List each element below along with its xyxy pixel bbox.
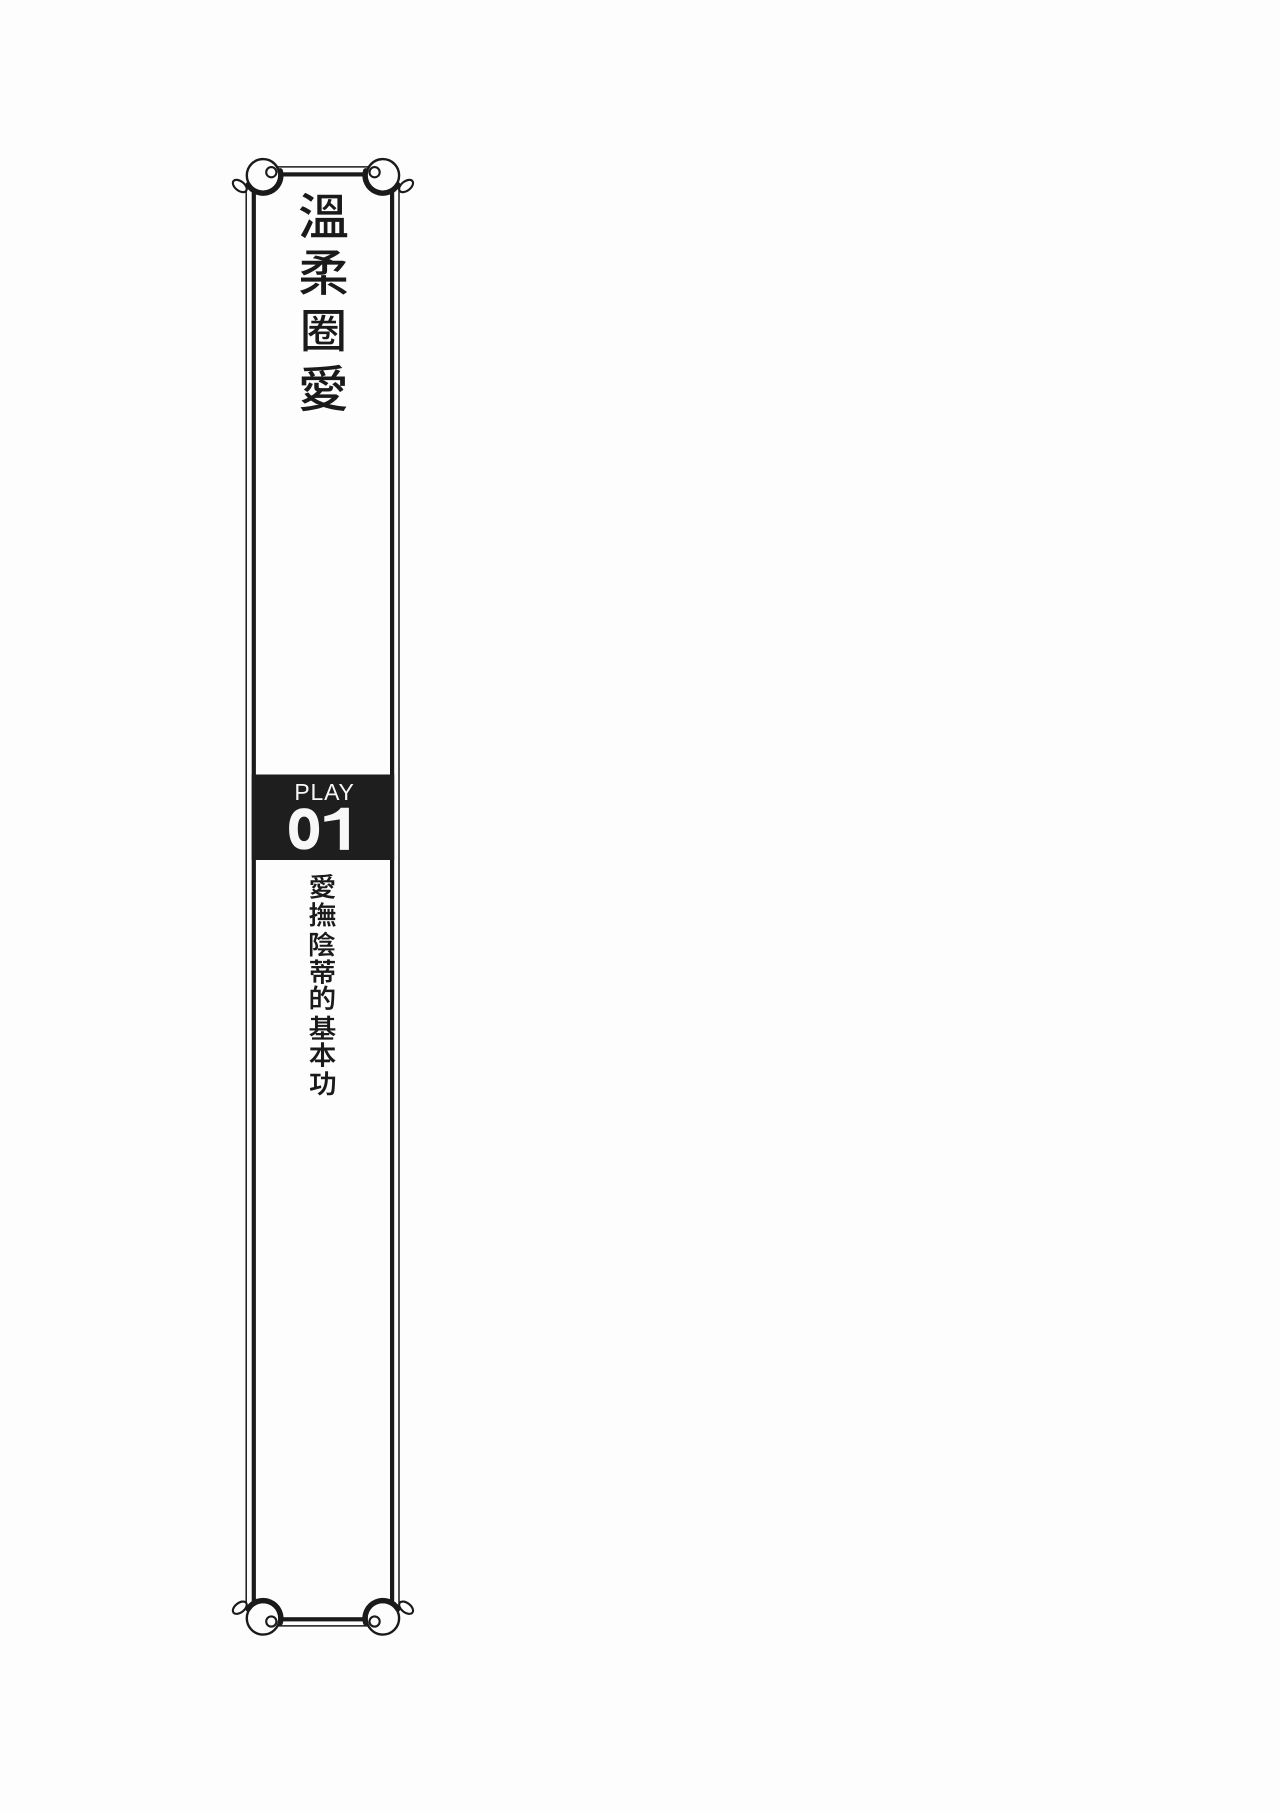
svg-text:PLAY: PLAY [294,779,354,805]
